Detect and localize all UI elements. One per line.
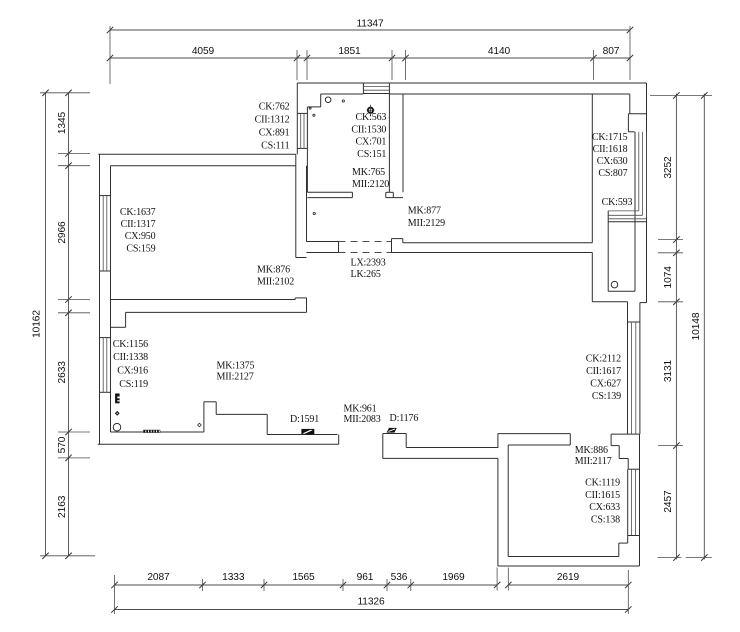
svg-text:CX:701: CX:701 bbox=[356, 137, 387, 148]
svg-text:MII:2129: MII:2129 bbox=[408, 218, 445, 229]
svg-text:CII:1312: CII:1312 bbox=[255, 115, 290, 126]
svg-text:1333: 1333 bbox=[222, 572, 245, 583]
svg-text:CK:593: CK:593 bbox=[602, 197, 633, 208]
svg-text:1969: 1969 bbox=[442, 572, 465, 583]
svg-text:4140: 4140 bbox=[488, 46, 511, 57]
svg-text:3131: 3131 bbox=[663, 359, 674, 382]
svg-text:10148: 10148 bbox=[691, 312, 702, 340]
svg-text:CK:1637: CK:1637 bbox=[120, 207, 156, 218]
svg-text:MK:876: MK:876 bbox=[257, 264, 290, 275]
svg-text:CII:1615: CII:1615 bbox=[585, 490, 620, 501]
svg-text:MK:765: MK:765 bbox=[352, 167, 385, 178]
svg-text:CX:891: CX:891 bbox=[259, 128, 290, 139]
svg-text:4059: 4059 bbox=[192, 46, 215, 57]
svg-text:MII:2120: MII:2120 bbox=[352, 179, 389, 190]
svg-text:CX:633: CX:633 bbox=[589, 502, 620, 513]
svg-text:2966: 2966 bbox=[57, 221, 68, 244]
svg-text:CII:1618: CII:1618 bbox=[593, 144, 628, 155]
svg-text:1851: 1851 bbox=[338, 46, 361, 57]
svg-text:2163: 2163 bbox=[57, 495, 68, 518]
svg-text:LX:2393: LX:2393 bbox=[351, 258, 386, 269]
svg-text:CS:151: CS:151 bbox=[357, 149, 386, 160]
svg-text:536: 536 bbox=[391, 572, 408, 583]
svg-text:CS:138: CS:138 bbox=[591, 515, 620, 526]
svg-text:1074: 1074 bbox=[663, 266, 674, 289]
svg-text:CK:1119: CK:1119 bbox=[585, 478, 620, 489]
svg-text:CX:950: CX:950 bbox=[125, 231, 156, 242]
svg-text:CK:2112: CK:2112 bbox=[586, 354, 621, 365]
svg-text:2619: 2619 bbox=[557, 572, 580, 583]
svg-text:2087: 2087 bbox=[147, 572, 170, 583]
svg-text:961: 961 bbox=[357, 572, 374, 583]
svg-text:CII:1617: CII:1617 bbox=[586, 366, 621, 377]
svg-text:CX:630: CX:630 bbox=[597, 156, 628, 167]
svg-text:MK:1375: MK:1375 bbox=[217, 361, 255, 372]
svg-text:1345: 1345 bbox=[57, 111, 68, 134]
svg-text:3252: 3252 bbox=[663, 156, 674, 179]
svg-text:MK:877: MK:877 bbox=[408, 206, 441, 217]
svg-text:CS:807: CS:807 bbox=[598, 168, 627, 179]
svg-text:CS:139: CS:139 bbox=[592, 391, 621, 402]
svg-text:MII:2127: MII:2127 bbox=[217, 372, 254, 383]
svg-text:CK:563: CK:563 bbox=[356, 112, 387, 123]
svg-text:CS:111: CS:111 bbox=[261, 141, 290, 152]
svg-text:CK:1156: CK:1156 bbox=[113, 339, 148, 350]
svg-text:CII:1338: CII:1338 bbox=[113, 352, 148, 363]
svg-text:CK:762: CK:762 bbox=[259, 102, 290, 113]
svg-text:CK:1715: CK:1715 bbox=[592, 132, 628, 143]
svg-text:CX:916: CX:916 bbox=[117, 366, 148, 377]
svg-text:D:1591: D:1591 bbox=[290, 414, 319, 425]
svg-text:11347: 11347 bbox=[356, 19, 384, 30]
svg-text:CII:1317: CII:1317 bbox=[121, 219, 156, 230]
svg-text:MK:886: MK:886 bbox=[575, 445, 608, 456]
svg-text:10162: 10162 bbox=[32, 310, 43, 338]
svg-text:MII:2117: MII:2117 bbox=[575, 456, 612, 467]
svg-text:807: 807 bbox=[603, 46, 620, 57]
svg-text:CII:1530: CII:1530 bbox=[351, 124, 386, 135]
svg-text:MII:2083: MII:2083 bbox=[344, 414, 381, 425]
svg-text:2457: 2457 bbox=[663, 490, 674, 513]
svg-text:CS:159: CS:159 bbox=[126, 243, 155, 254]
svg-text:D:1176: D:1176 bbox=[390, 413, 419, 424]
svg-text:CS:119: CS:119 bbox=[119, 379, 148, 390]
svg-text:2633: 2633 bbox=[57, 361, 68, 384]
svg-text:11326: 11326 bbox=[357, 596, 385, 607]
svg-text:CX:627: CX:627 bbox=[590, 379, 621, 390]
svg-text:MII:2102: MII:2102 bbox=[257, 277, 294, 288]
svg-text:1565: 1565 bbox=[292, 572, 315, 583]
svg-text:LK:265: LK:265 bbox=[351, 269, 381, 280]
svg-text:570: 570 bbox=[57, 436, 68, 453]
